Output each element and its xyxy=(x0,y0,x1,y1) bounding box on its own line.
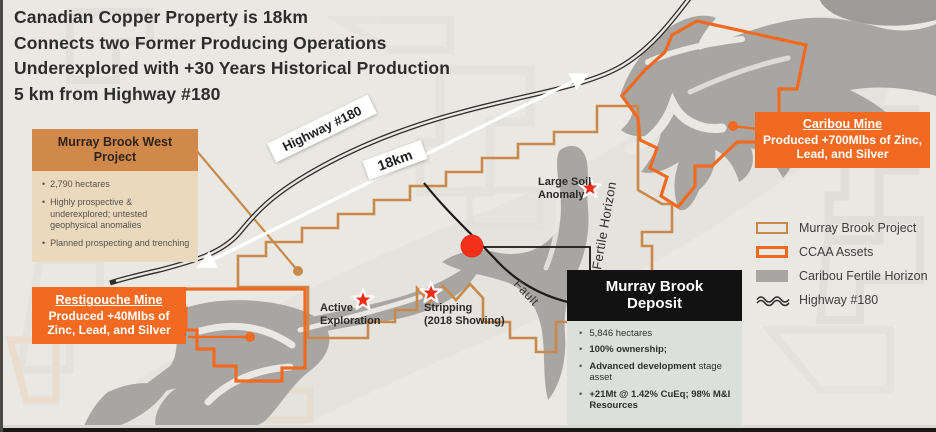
caribou-mine-title: Caribou Mine xyxy=(761,117,924,131)
bullet-item: •Advanced development stage asset xyxy=(579,361,734,384)
active-exploration-label: Active Exploration xyxy=(320,302,381,327)
legend-label: Highway #180 xyxy=(799,293,878,307)
deposit-marker xyxy=(461,235,484,258)
bullet-item: •Planned prospecting and trenching xyxy=(42,238,190,249)
gray-fill-swatch xyxy=(756,270,788,282)
legend-item: Highway #180 xyxy=(756,291,928,309)
orange-outline-swatch xyxy=(756,246,788,258)
bottom-edge-dark xyxy=(0,428,936,432)
caribou-mine-subtitle: Produced +700Mlbs of Zinc, Lead, and Sil… xyxy=(761,133,924,162)
title-line-2: Connects two Former Producing Operations xyxy=(14,31,574,57)
legend-label: Caribou Fertile Horizon xyxy=(799,269,928,283)
title-line-4: 5 km from Highway #180 xyxy=(14,82,574,108)
murray-brook-west-title: Murray Brook West Project xyxy=(32,129,198,171)
murray-brook-deposit-title: Murray Brook Deposit xyxy=(567,270,742,321)
murray-brook-deposit-body: •5,846 hectares•100% ownership;•Advanced… xyxy=(567,321,742,425)
bullet-item: •Highly prospective & underexplored; unt… xyxy=(42,197,190,231)
stripping-label: Stripping (2018 Showing) xyxy=(424,302,505,327)
deposit-title-line2: Deposit xyxy=(571,295,738,312)
murray-brook-west-bullets: •2,790 hectares•Highly prospective & und… xyxy=(36,179,192,249)
slide-title: Canadian Copper Property is 18km Connect… xyxy=(14,5,574,107)
murray-brook-deposit-callout: Murray Brook Deposit •5,846 hectares•100… xyxy=(567,270,742,425)
title-line-1: Canadian Copper Property is 18km xyxy=(14,5,574,31)
bullet-item: •100% ownership; xyxy=(579,344,734,356)
legend-label: CCAA Assets xyxy=(799,245,873,259)
title-line-3: Underexplored with +30 Years Historical … xyxy=(14,56,574,82)
murray-brook-deposit-bullets: •5,846 hectares•100% ownership;•Advanced… xyxy=(571,328,736,412)
bullet-item: •5,846 hectares xyxy=(579,328,734,340)
murray-brook-west-body: •2,790 hectares•Highly prospective & und… xyxy=(32,171,198,262)
highway-icon xyxy=(756,294,788,306)
legend-item: CCAA Assets xyxy=(756,243,928,261)
restigouche-mine-subtitle: Produced +40Mlbs of Zinc, Lead, and Silv… xyxy=(38,309,180,338)
left-edge-dark xyxy=(0,0,3,432)
legend-label: Murray Brook Project xyxy=(799,221,916,235)
large-soil-anomaly-label: Large Soil Anomaly xyxy=(538,176,591,201)
murray-brook-west-callout: Murray Brook West Project •2,790 hectare… xyxy=(32,129,198,262)
slide-canvas: Canadian Copper Property is 18km Connect… xyxy=(0,0,936,432)
restigouche-mine-callout: Restigouche Mine Produced +40Mlbs of Zin… xyxy=(32,287,186,344)
tan-outline-swatch xyxy=(756,222,788,234)
bullet-item: •+21Mt @ 1.42% CuEq; 98% M&I Resources xyxy=(579,389,734,412)
deposit-title-line1: Murray Brook xyxy=(571,278,738,295)
legend-item: Caribou Fertile Horizon xyxy=(756,267,928,285)
caribou-mine-callout: Caribou Mine Produced +700Mlbs of Zinc, … xyxy=(755,112,930,168)
legend-item: Murray Brook Project xyxy=(756,219,928,237)
bullet-item: •2,790 hectares xyxy=(42,179,190,190)
map-legend: Murray Brook ProjectCCAA AssetsCaribou F… xyxy=(756,219,928,315)
restigouche-mine-title: Restigouche Mine xyxy=(38,293,180,307)
bottom-edge-light xyxy=(0,425,936,428)
